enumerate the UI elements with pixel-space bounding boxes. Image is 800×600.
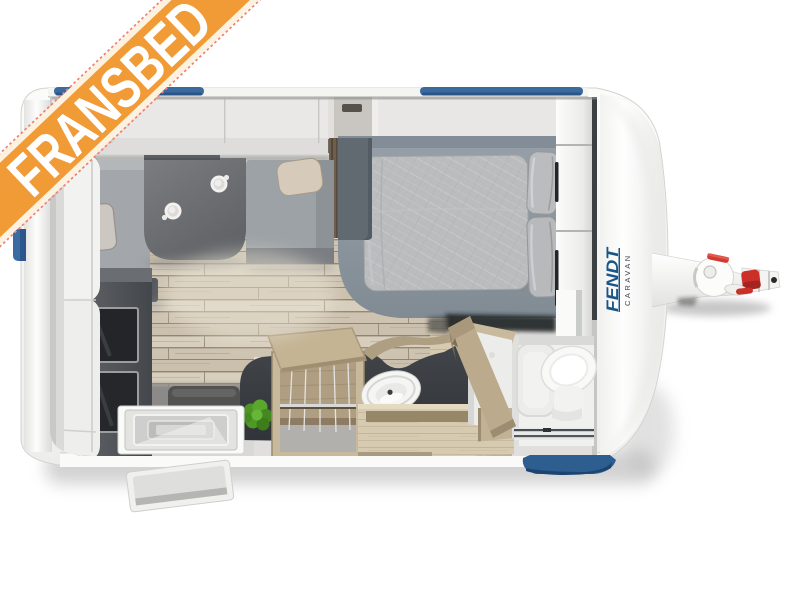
svg-text:CARAVAN: CARAVAN xyxy=(623,254,632,306)
